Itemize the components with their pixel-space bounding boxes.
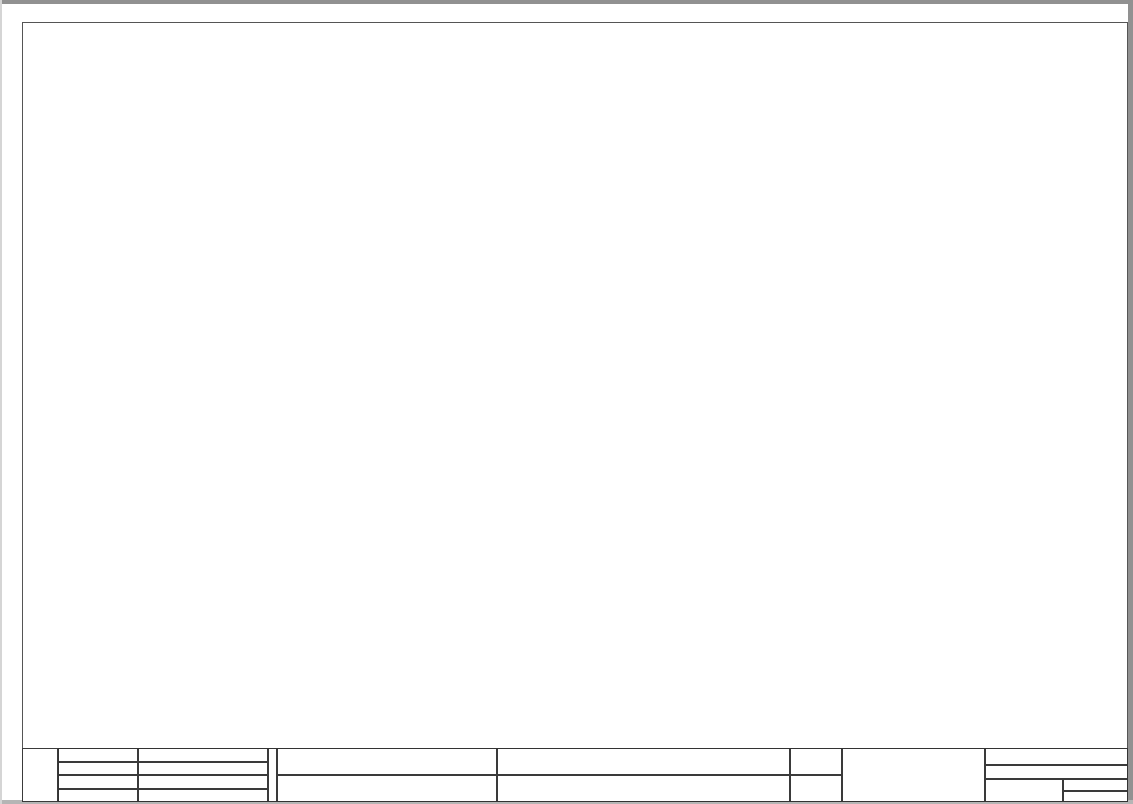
tb-label-creator [58,748,138,762]
tb-project-value [277,775,497,802]
tb-page-number [1063,791,1128,803]
tb-project-label [277,748,497,775]
tb-plant [985,748,1128,765]
tb-value-reviewer [138,775,268,789]
schematic-page [0,0,1133,804]
tb-empty-b [790,775,842,802]
tb-sliver-cell [268,748,277,802]
tb-sheet-count [1063,779,1128,791]
tb-location [985,765,1128,779]
tb-value-creator [138,748,268,762]
tb-empty-a [790,748,842,775]
tb-empty-cell [22,748,58,802]
tb-value-created-time [138,762,268,776]
tb-page-name-value [497,775,790,802]
tb-label-review-time [58,789,138,803]
tb-doc-number [985,779,1063,802]
tb-label-reviewer [58,775,138,789]
tb-value-review-time [138,789,268,803]
tb-page-name-label [497,748,790,775]
tb-organization [842,748,985,802]
tb-label-created-time [58,762,138,776]
schematic-text-layer [0,0,1133,804]
